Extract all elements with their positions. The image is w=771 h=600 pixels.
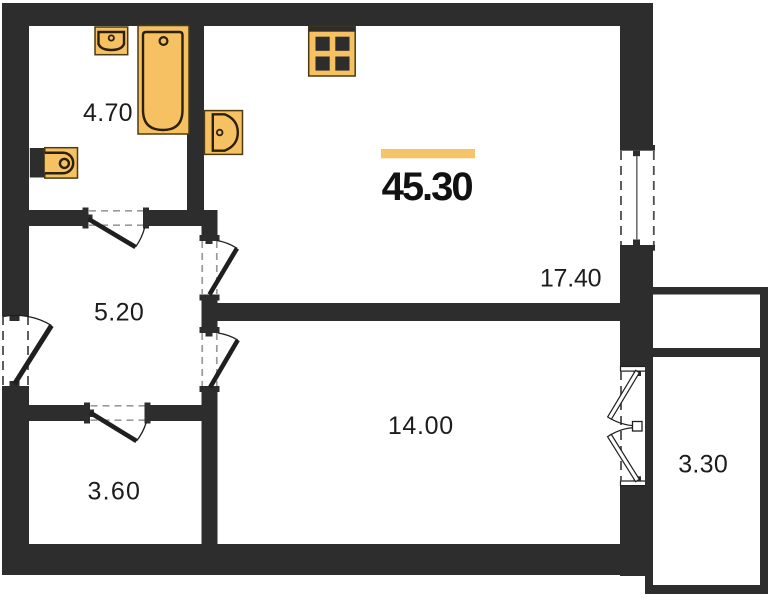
svg-text:4.70: 4.70 — [83, 99, 133, 127]
svg-text:3.60: 3.60 — [87, 478, 140, 506]
svg-text:14.00: 14.00 — [388, 412, 453, 440]
svg-text:45.30: 45.30 — [382, 165, 474, 209]
svg-text:3.30: 3.30 — [678, 451, 728, 479]
svg-text:17.40: 17.40 — [540, 265, 602, 293]
svg-text:5.20: 5.20 — [94, 299, 144, 327]
